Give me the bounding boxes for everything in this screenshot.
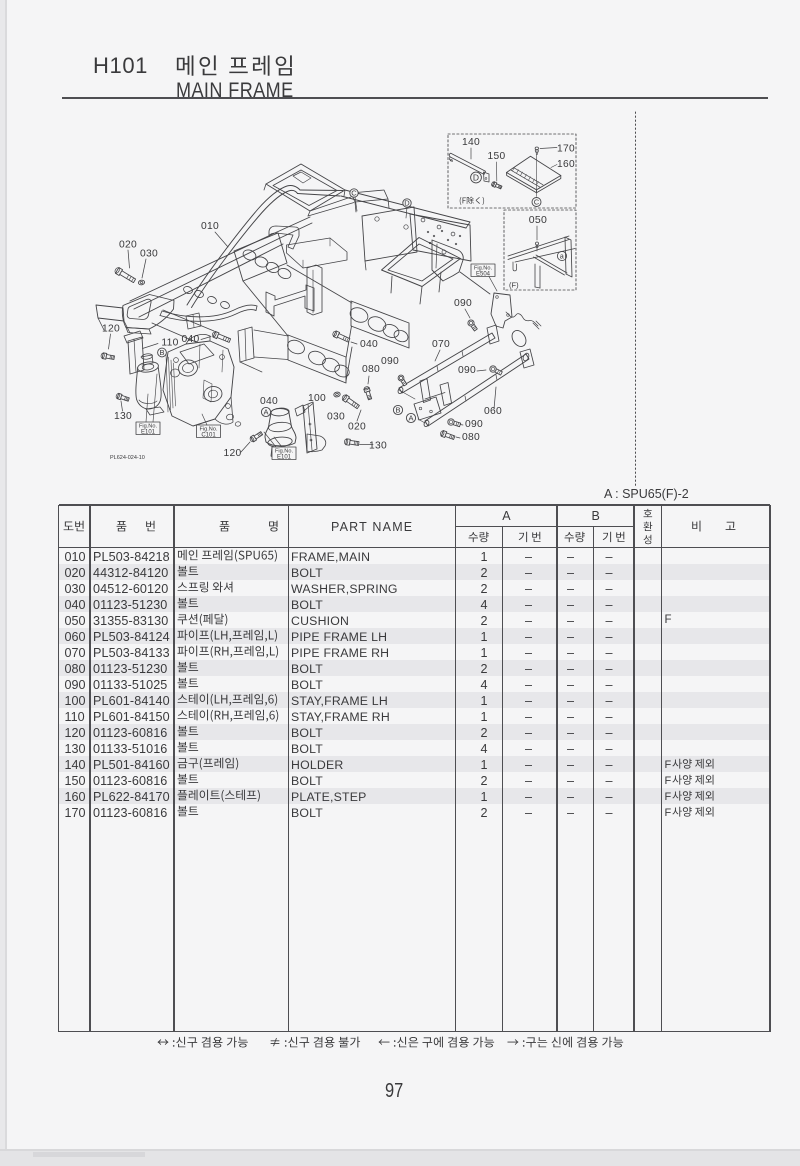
svg-text:150: 150	[488, 151, 506, 162]
svg-text:040: 040	[360, 339, 378, 350]
svg-text:130: 130	[114, 411, 132, 422]
svg-text:B: B	[159, 348, 164, 357]
svg-text:120: 120	[102, 324, 120, 335]
svg-text:020: 020	[119, 240, 137, 251]
svg-text:A: A	[408, 414, 413, 423]
svg-text:E101: E101	[277, 454, 292, 460]
svg-text:170: 170	[557, 144, 575, 155]
svg-text:100: 100	[308, 393, 326, 404]
svg-text:040: 040	[181, 334, 199, 345]
svg-text:B: B	[395, 406, 400, 415]
svg-text:PL624-024-10: PL624-024-10	[110, 455, 145, 461]
svg-text:D: D	[404, 199, 410, 208]
svg-text:090: 090	[454, 298, 472, 309]
svg-text:090: 090	[381, 356, 399, 367]
svg-text:a: a	[560, 254, 564, 261]
svg-text:010: 010	[201, 221, 219, 232]
svg-text:A: A	[263, 408, 268, 417]
svg-text:030: 030	[327, 412, 345, 423]
svg-text:E101: E101	[141, 429, 156, 435]
svg-text:030: 030	[140, 249, 158, 260]
svg-text:090: 090	[465, 419, 483, 430]
svg-text:160: 160	[557, 159, 575, 170]
svg-text:140: 140	[462, 137, 480, 148]
svg-text:090: 090	[458, 365, 476, 376]
svg-text:C: C	[351, 189, 357, 198]
svg-text:130: 130	[369, 441, 387, 452]
svg-text:110: 110	[161, 338, 178, 349]
svg-text:070: 070	[432, 339, 450, 350]
svg-text:060: 060	[484, 406, 502, 417]
svg-text:120: 120	[223, 448, 241, 459]
svg-text:C101: C101	[201, 432, 216, 438]
svg-text:050: 050	[529, 214, 547, 226]
svg-text:C: C	[534, 198, 540, 207]
svg-text:(F): (F)	[509, 281, 519, 290]
svg-text:080: 080	[362, 364, 380, 375]
svg-text:E504: E504	[476, 271, 491, 277]
svg-text:020: 020	[348, 422, 366, 433]
svg-text:080: 080	[462, 432, 480, 443]
svg-text:D: D	[473, 173, 479, 183]
svg-text:040: 040	[260, 396, 278, 407]
